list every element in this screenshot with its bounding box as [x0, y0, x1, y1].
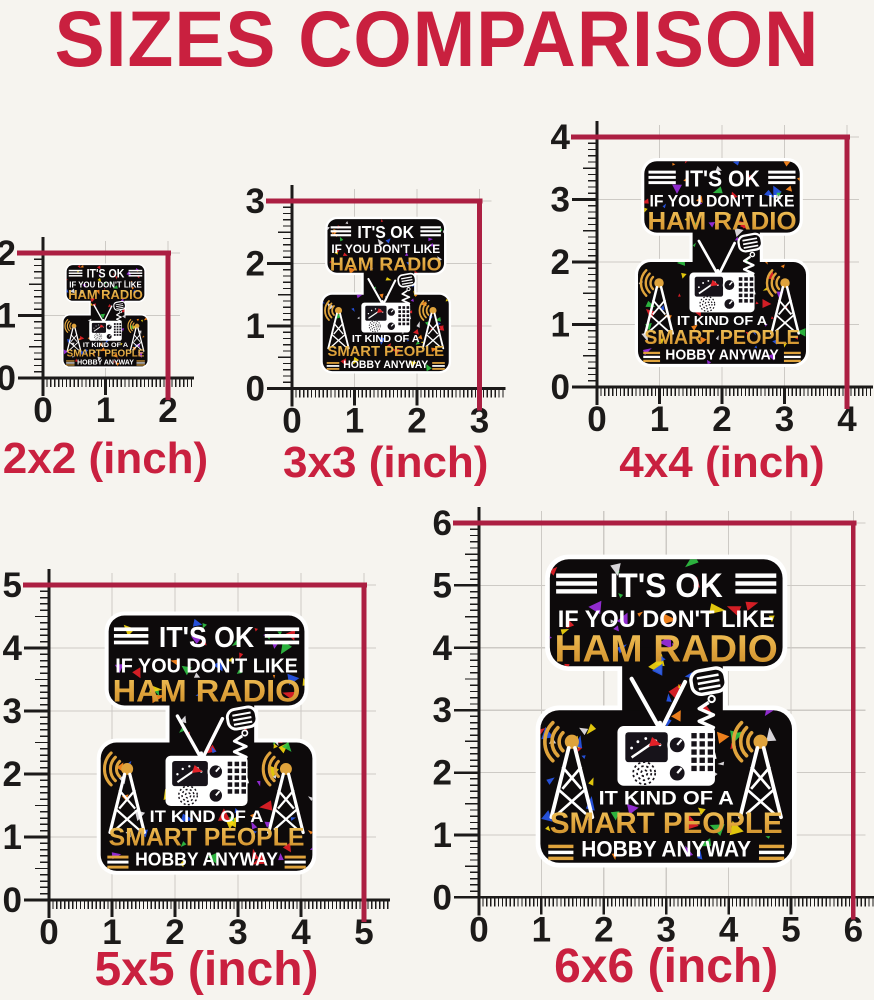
size-panel-3x3: 00112233IT'S OKIF YOU DON'T LIKEHAM RADI… — [246, 181, 506, 458]
svg-text:SMART PEOPLE: SMART PEOPLE — [550, 806, 783, 839]
svg-text:1: 1 — [96, 391, 115, 430]
svg-text:0: 0 — [3, 881, 22, 920]
svg-text:IT'S OK: IT'S OK — [684, 165, 760, 191]
svg-text:4: 4 — [551, 118, 571, 157]
svg-text:HOBBY ANYWAY: HOBBY ANYWAY — [581, 836, 751, 861]
svg-text:HAM RADIO: HAM RADIO — [68, 288, 143, 302]
svg-text:5: 5 — [781, 910, 800, 949]
svg-text:3: 3 — [246, 182, 265, 221]
panel-size-label: 6x6 (inch) — [554, 943, 778, 991]
svg-text:HOBBY ANYWAY: HOBBY ANYWAY — [343, 358, 429, 370]
svg-text:5: 5 — [3, 566, 22, 605]
size-panel-2x2: 001122IT'S OKIF YOU DON'T LIKEHAM RADIOI… — [0, 233, 194, 447]
svg-text:2: 2 — [407, 401, 426, 440]
svg-text:0: 0 — [282, 401, 301, 440]
svg-text:HOBBY ANYWAY: HOBBY ANYWAY — [77, 357, 134, 366]
svg-text:HAM RADIO: HAM RADIO — [647, 207, 796, 235]
svg-text:1: 1 — [3, 818, 22, 857]
size-panel-6x6: 00112233445566IT'S OKIF YOU DON'T LIKEHA… — [433, 503, 874, 966]
y-axis-ruler — [18, 237, 43, 396]
svg-text:SMART PEOPLE: SMART PEOPLE — [327, 343, 444, 360]
svg-text:3: 3 — [3, 692, 22, 731]
svg-text:2: 2 — [433, 753, 452, 792]
x-axis-ruler — [25, 900, 390, 917]
svg-text:IT'S OK: IT'S OK — [610, 567, 723, 605]
svg-text:0: 0 — [469, 910, 488, 949]
svg-text:IT'S OK: IT'S OK — [357, 222, 414, 242]
radio-transceiver-icon — [89, 321, 122, 341]
svg-text:IT'S OK: IT'S OK — [159, 622, 254, 654]
svg-text:HOBBY ANYWAY: HOBBY ANYWAY — [665, 348, 779, 364]
svg-text:2: 2 — [0, 234, 16, 273]
svg-text:IT'S OK: IT'S OK — [87, 269, 125, 281]
svg-text:1: 1 — [551, 306, 570, 345]
panel-size-label: 5x5 (inch) — [94, 946, 318, 994]
ruler-chart: 00112233IT'S OKIF YOU DON'T LIKEHAM RADI… — [246, 181, 506, 453]
svg-text:HAM RADIO: HAM RADIO — [555, 627, 778, 669]
radio-transceiver-icon — [689, 273, 754, 313]
svg-text:IT KIND OF A: IT KIND OF A — [677, 313, 768, 328]
ruler-chart: 00112233445566IT'S OKIF YOU DON'T LIKEHA… — [433, 503, 874, 961]
panel-size-label: 3x3 (inch) — [283, 441, 488, 485]
svg-text:0: 0 — [433, 878, 452, 917]
svg-text:1: 1 — [345, 401, 364, 440]
svg-text:4: 4 — [433, 628, 453, 667]
y-axis-ruler — [24, 569, 49, 918]
y-axis-ruler — [454, 507, 479, 915]
svg-text:1: 1 — [532, 910, 551, 949]
svg-text:2: 2 — [3, 755, 22, 794]
sizes-comparison-canvas: SIZES COMPARISON 001122IT'S OKIF YOU DON… — [0, 0, 874, 1000]
svg-text:4: 4 — [3, 629, 23, 668]
svg-text:SMART PEOPLE: SMART PEOPLE — [109, 824, 305, 852]
svg-text:HAM RADIO: HAM RADIO — [113, 672, 301, 708]
ham-radio-sticker: IT'S OKIF YOU DON'T LIKEHAM RADIOIT KIND… — [100, 615, 390, 870]
svg-text:6: 6 — [433, 504, 452, 543]
page-title: SIZES COMPARISON — [0, 0, 874, 79]
svg-text:0: 0 — [246, 369, 265, 408]
size-panel-4x4: 0011223344IT'S OKIF YOU DON'T LIKEHAM RA… — [551, 117, 873, 456]
svg-text:1: 1 — [246, 307, 265, 346]
svg-text:0: 0 — [0, 359, 16, 398]
svg-text:HOBBY ANYWAY: HOBBY ANYWAY — [135, 849, 278, 870]
ruler-chart: 001122IT'S OKIF YOU DON'T LIKEHAM RADIOI… — [0, 233, 194, 442]
size-panel-5x5: 001122334455IT'S OKIF YOU DON'T LIKEHAM … — [3, 565, 390, 969]
ruler-chart: 001122334455IT'S OKIF YOU DON'T LIKEHAM … — [3, 565, 390, 964]
radio-transceiver-icon — [361, 302, 410, 332]
radio-transceiver-icon — [166, 756, 248, 806]
y-axis-ruler — [267, 185, 292, 407]
svg-text:1: 1 — [650, 400, 669, 439]
ham-radio-sticker: IT'S OKIF YOU DON'T LIKEHAM RADIOIT KIND… — [61, 262, 194, 367]
svg-text:0: 0 — [587, 400, 606, 439]
svg-text:3: 3 — [433, 691, 452, 730]
svg-text:SMART PEOPLE: SMART PEOPLE — [644, 327, 799, 349]
ruler-chart: 0011223344IT'S OKIF YOU DON'T LIKEHAM RA… — [551, 117, 873, 451]
svg-text:2: 2 — [551, 243, 570, 282]
ham-radio-sticker: IT'S OKIF YOU DON'T LIKEHAM RADIOIT KIND… — [532, 554, 874, 863]
svg-text:2: 2 — [246, 244, 265, 283]
y-axis-ruler — [572, 121, 597, 405]
svg-text:2: 2 — [712, 400, 731, 439]
svg-text:0: 0 — [33, 391, 52, 430]
radio-transceiver-icon — [617, 726, 714, 786]
svg-text:1: 1 — [433, 816, 452, 855]
panel-size-label: 4x4 (inch) — [619, 441, 824, 485]
svg-text:0: 0 — [39, 913, 58, 952]
svg-text:3: 3 — [551, 181, 570, 220]
ham-radio-sticker: IT'S OKIF YOU DON'T LIKEHAM RADIOIT KIND… — [636, 153, 873, 366]
svg-text:3: 3 — [775, 400, 794, 439]
panel-size-label: 2x2 (inch) — [3, 437, 208, 481]
svg-text:5: 5 — [433, 566, 452, 605]
svg-text:0: 0 — [551, 368, 570, 407]
svg-text:1: 1 — [0, 297, 16, 336]
svg-text:HAM RADIO: HAM RADIO — [330, 254, 442, 275]
